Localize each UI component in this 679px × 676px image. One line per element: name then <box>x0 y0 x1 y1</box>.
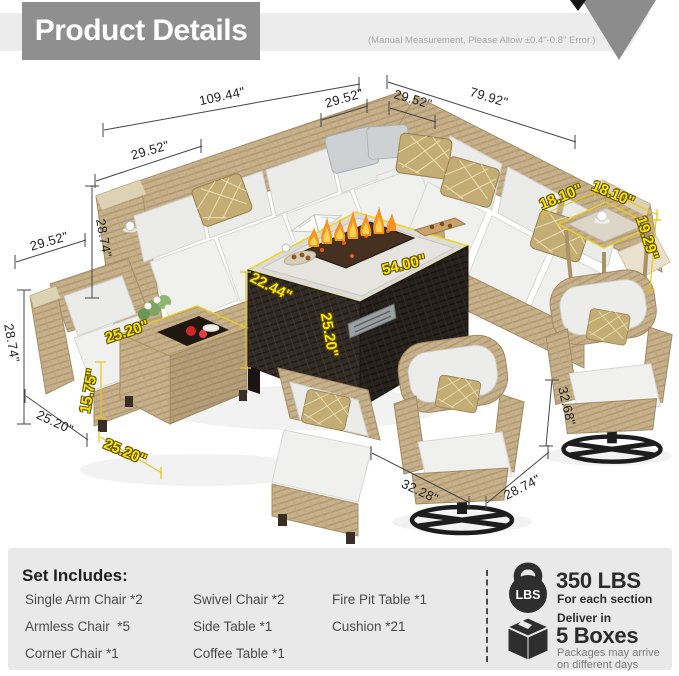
swivel-chair-left <box>394 332 524 533</box>
set-includes-heading: Set Includes: <box>22 566 128 586</box>
set-includes-column-1: Single Arm Chair *2 Armless Chair *5 Cor… <box>25 592 143 673</box>
lbs-icon-label: LBS <box>516 588 541 602</box>
set-item: Corner Chair *1 <box>25 646 143 662</box>
footer-divider <box>486 570 488 662</box>
weight-kettlebell-icon: LBS <box>504 558 552 614</box>
set-item: Swivel Chair *2 <box>193 592 285 608</box>
set-item: Cushion *21 <box>332 619 427 635</box>
swivel-chair-right <box>546 266 672 461</box>
set-item: Armless Chair *5 <box>25 619 143 635</box>
set-includes-column-2: Swivel Chair *2 Side Table *1 Coffee Tab… <box>193 592 285 673</box>
set-item: Fire Pit Table *1 <box>332 592 427 608</box>
max-weight-caption: For each section <box>557 592 652 606</box>
delivery-box-icon <box>506 616 550 662</box>
armless-chair <box>272 368 380 544</box>
delivery-value: 5 Boxes <box>556 623 638 649</box>
set-includes-column-3: Fire Pit Table *1 Cushion *21 <box>332 592 427 646</box>
max-weight-value: 350 LBS <box>556 568 641 594</box>
set-item: Single Arm Chair *2 <box>25 592 143 608</box>
set-item: Coffee Table *1 <box>193 646 285 662</box>
furniture-illustration <box>0 0 679 548</box>
delivery-caption-2: on different days <box>557 659 638 672</box>
set-item: Side Table *1 <box>193 619 285 635</box>
